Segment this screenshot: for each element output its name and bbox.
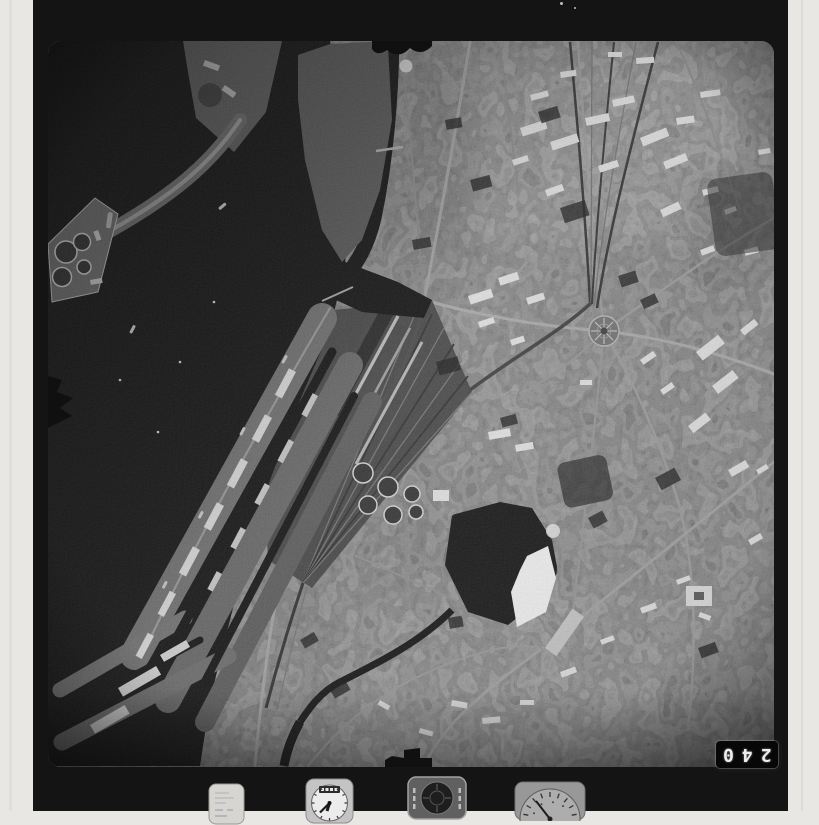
dust-speck [560, 2, 563, 5]
level-indicator-icon [407, 776, 467, 820]
film-frame [33, 0, 788, 811]
aerial-photo [48, 41, 774, 767]
data-pad-icon [208, 783, 245, 825]
frame-number: 240 [715, 744, 780, 765]
vignette [48, 41, 774, 767]
altimeter-icon [514, 781, 586, 821]
scanned-film-sheet: 240 [0, 0, 819, 811]
frame-counter: 240 [716, 741, 778, 768]
scanner-streak-right [801, 0, 803, 811]
scanner-streak-left [9, 0, 12, 811]
clock-icon [305, 778, 354, 824]
dust-speck [574, 7, 576, 9]
